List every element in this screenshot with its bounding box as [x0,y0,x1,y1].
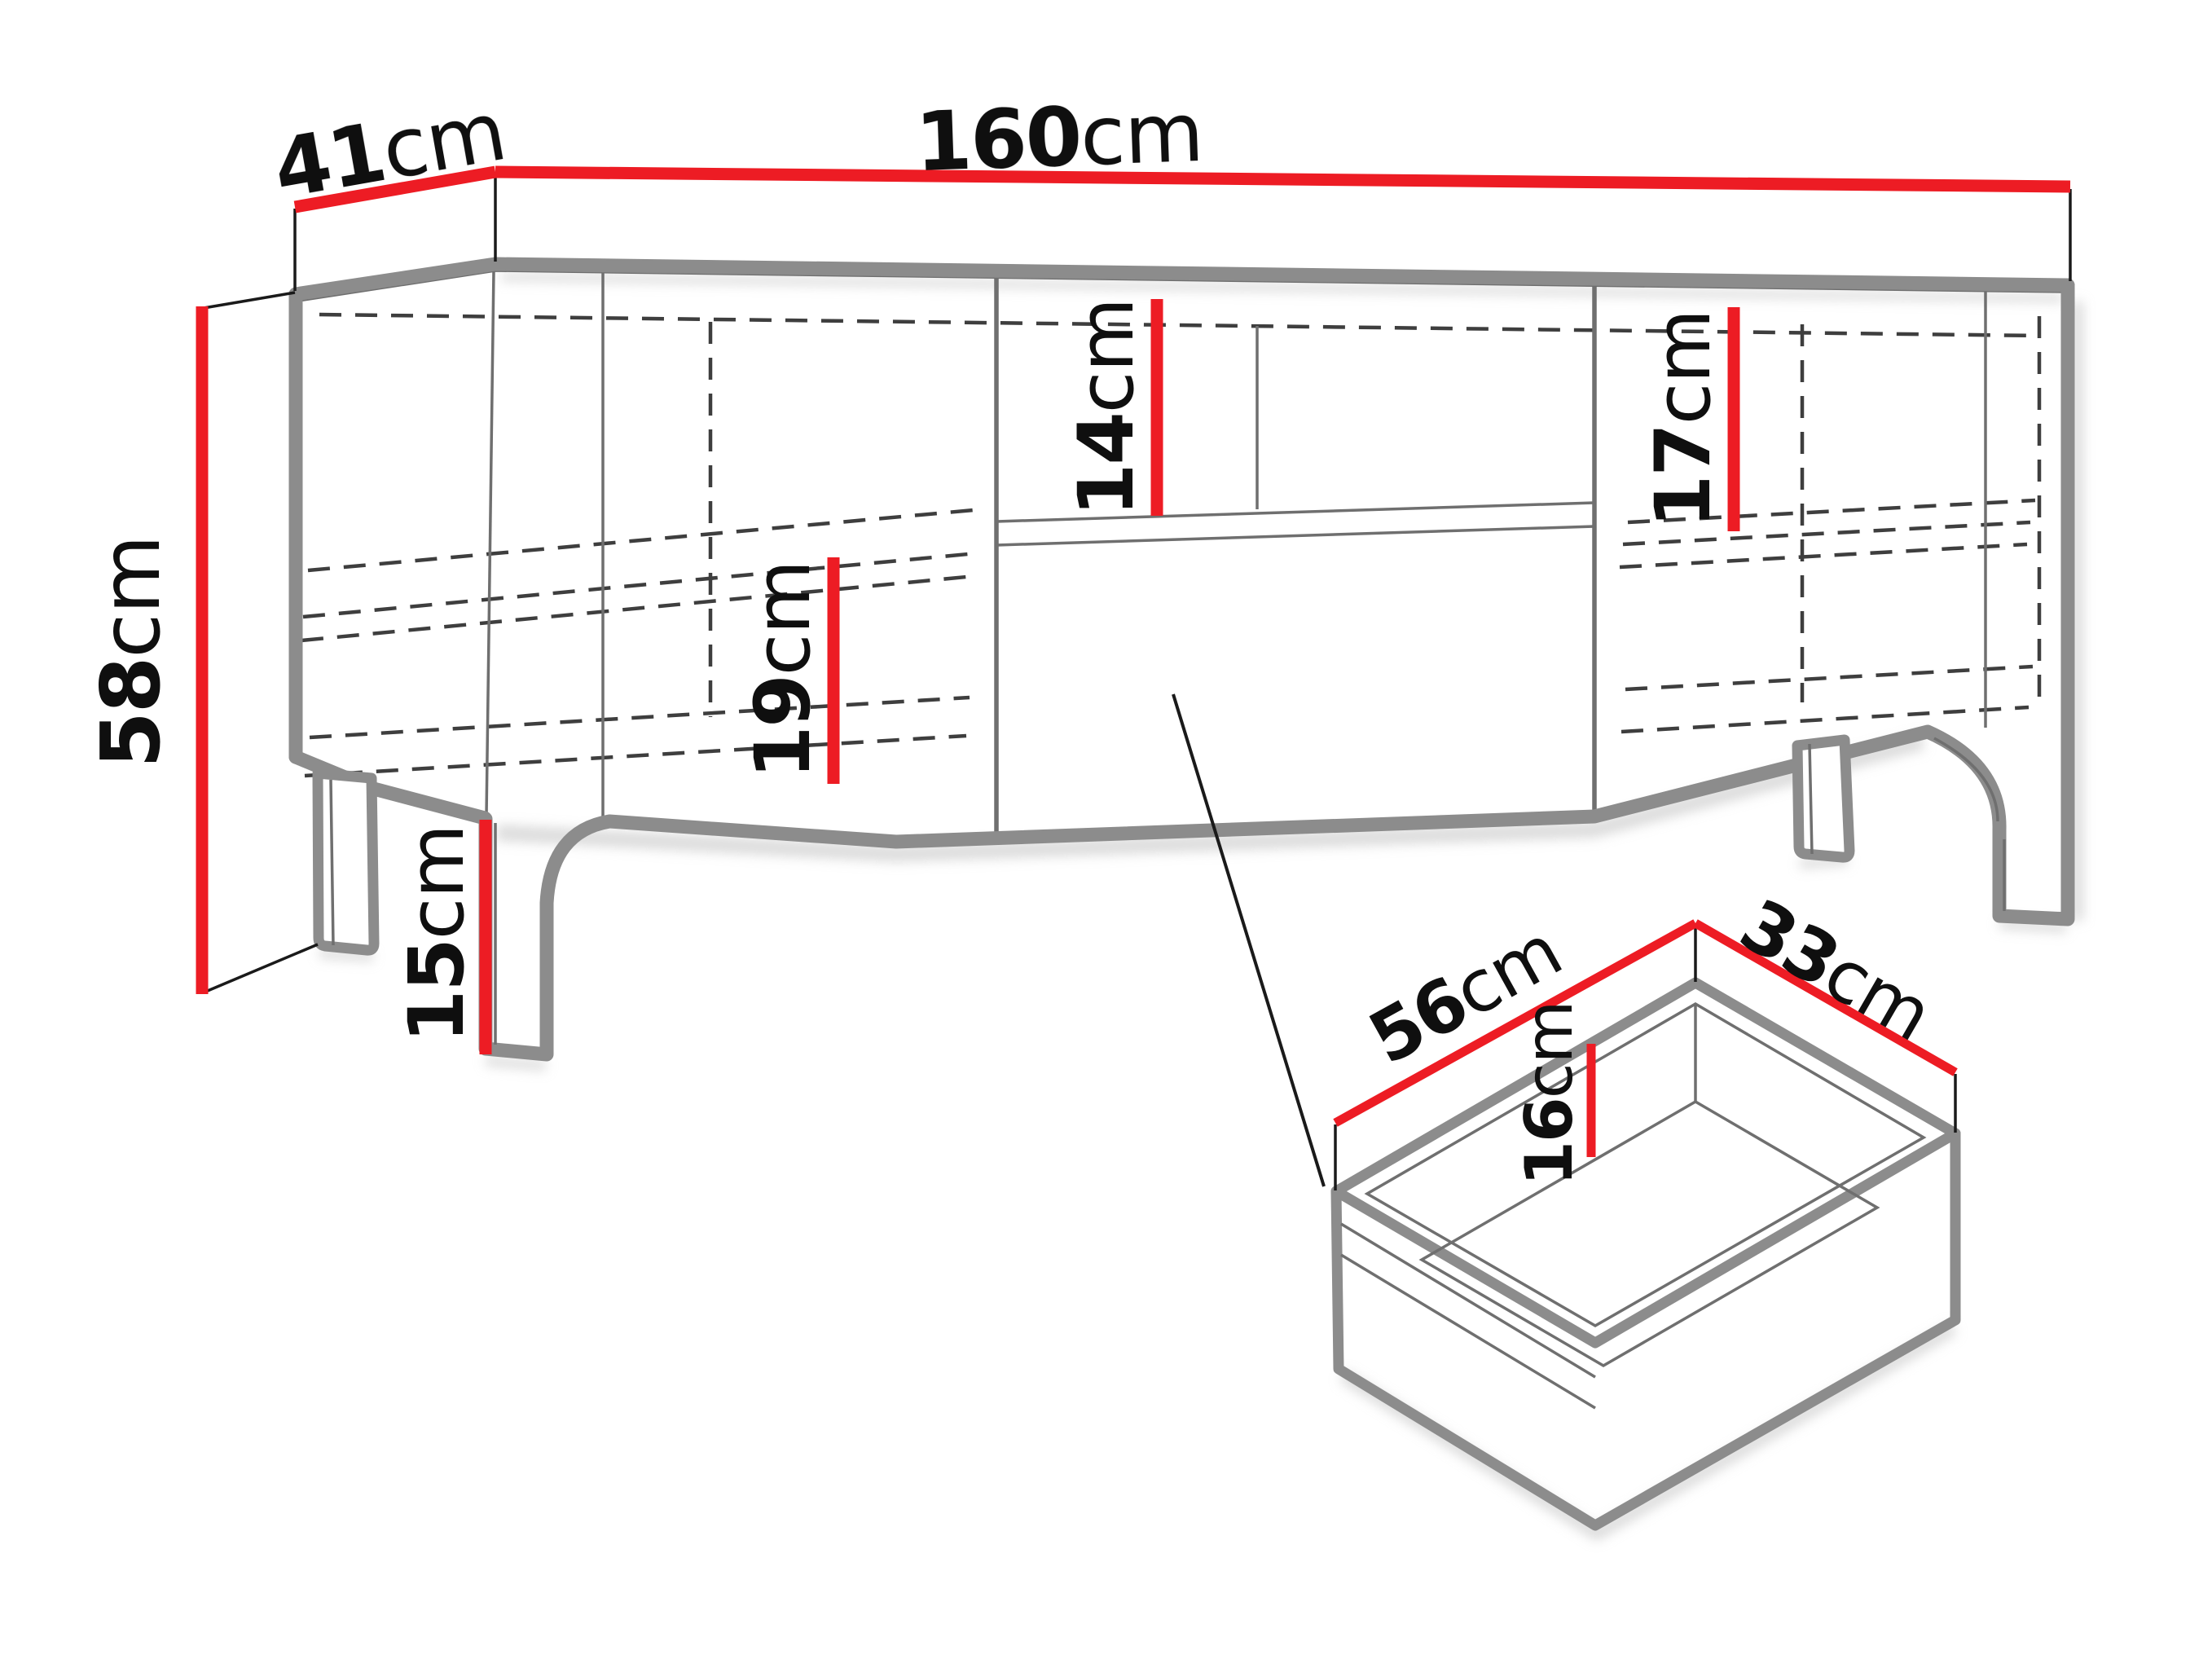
drawer-pointer-line [1173,694,1324,1186]
drawer-floor [1422,1102,1877,1366]
front-left-leg-shadow [486,1061,546,1066]
height-ext-line-bottom [204,944,318,992]
left-bottom-back-dashed [310,697,970,737]
left-shelf-back-dashed [308,510,974,570]
interior-top-dashed [319,315,2040,336]
dim-label-cabinet-width: 160cm [913,84,1204,189]
dim-label-cabinet-height: 58cm [83,535,178,768]
dim-label-cabinet-depth: 41cm [266,83,512,218]
dim-label-drawer-height: 16cm [1511,1001,1587,1186]
cabinet-interior-dashed [301,315,2040,776]
niche-shelf-front-line [996,526,1594,545]
diagram-canvas: 160cm41cm58cm14cm17cm19cm15cm56cm33cm16c… [0,0,2212,1659]
right-bottom-front-dashed [1621,707,2029,732]
rear-left-leg [318,773,374,950]
dim-label-left-shelf-height: 19cm [739,561,828,779]
dim-label-right-shelf-height: 17cm [1639,310,1728,528]
dim-label-niche-height: 14cm [1062,298,1151,517]
shadow-layer [319,277,2078,1534]
dim-label-leg-height: 15cm [393,825,482,1043]
furniture-dimension-diagram: 160cm41cm58cm14cm17cm19cm15cm56cm33cm16c… [0,0,2212,1659]
rear-right-leg [1797,740,1849,857]
drawer-box [1336,983,1955,1525]
height-ext-line-top [204,293,295,308]
right-shelf-edge-dashed [1620,544,2027,567]
dim-label-drawer-depth: 33cm [1727,882,1946,1057]
dimension-line-width-160 [495,172,2070,187]
right-bottom-back-dashed [1625,667,2033,689]
drawer-side-seam-line-1 [1341,1224,1595,1377]
drawer-side-seam-line-2 [1341,1255,1595,1408]
left-bottom-front-dashed [305,736,966,776]
front-left-corner-line [486,271,494,816]
